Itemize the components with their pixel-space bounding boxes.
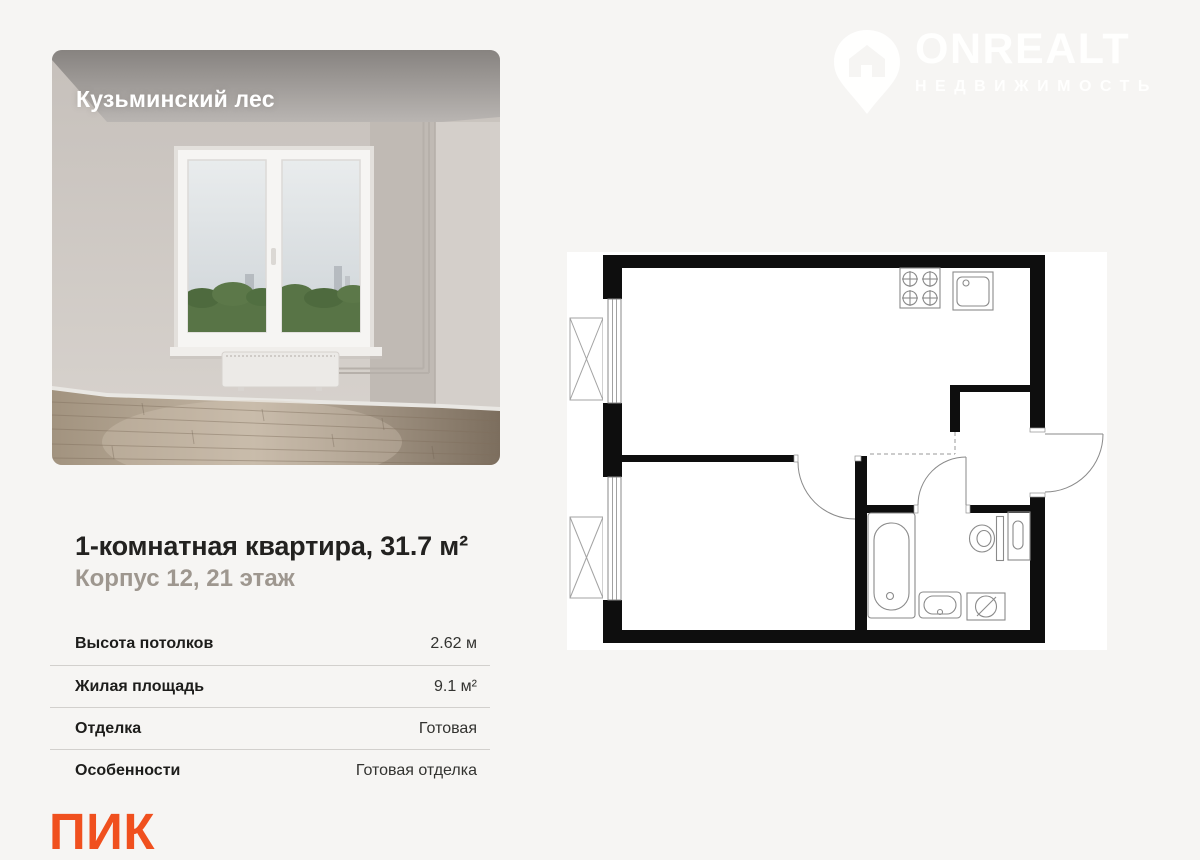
pik-developer-logo[interactable]: ПИК — [49, 806, 155, 857]
room-window — [170, 146, 382, 359]
spec-label: Особенности — [75, 762, 180, 780]
window — [603, 299, 622, 403]
page-subtitle: Корпус 12, 21 этаж — [75, 566, 295, 591]
table-row: Жилая площадь 9.1 м² — [50, 665, 490, 707]
stove — [900, 268, 940, 308]
spec-value: 2.62 м — [430, 635, 477, 653]
door-jambs — [794, 428, 1045, 513]
spec-value: 9.1 м² — [434, 678, 477, 696]
radiator — [222, 352, 339, 391]
spec-label: Жилая площадь — [75, 678, 204, 696]
table-row: Особенности Готовая отделка — [50, 749, 490, 791]
kitchen-sink — [953, 272, 993, 310]
entrance-door — [1045, 434, 1103, 492]
floorplan-drawing — [567, 252, 1107, 650]
opening-dashed-lines — [870, 432, 955, 454]
spec-table: Высота потолков 2.62 м Жилая площадь 9.1… — [50, 623, 490, 791]
page-title: 1-комнатная квартира, 31.7 м² — [75, 532, 468, 560]
toilet — [970, 517, 1004, 561]
window-handle — [271, 248, 276, 265]
spec-value: Готовая — [419, 720, 477, 738]
watermark-tagline: НЕДВИЖИМОСТЬ — [915, 78, 1158, 96]
walls — [603, 255, 1045, 643]
bathtub — [868, 513, 915, 618]
washing-machine — [967, 593, 1005, 620]
room-door — [798, 462, 855, 519]
table-row: Отделка Готовая — [50, 707, 490, 749]
room-wall-right-shade — [370, 122, 435, 414]
table-row: Высота потолков 2.62 м — [50, 623, 490, 665]
project-name-label: Кузьминский лес — [76, 86, 275, 113]
apartment-photo[interactable]: Кузьминский лес — [52, 50, 500, 465]
spec-label: Высота потолков — [75, 635, 213, 653]
washbasin — [919, 592, 961, 618]
room-wall-right-face — [435, 122, 500, 414]
balcony — [570, 318, 603, 400]
floorplan-image[interactable] — [567, 252, 1107, 650]
listing-page: { "page": { "background_color": "#f6f5f3… — [0, 0, 1200, 850]
balcony — [570, 517, 603, 598]
onrealt-watermark: ONREALT НЕДВИЖИМОСТЬ — [831, 28, 1158, 116]
house-location-pin-icon — [831, 28, 903, 116]
window — [603, 477, 622, 600]
bathroom-door — [918, 457, 966, 505]
watermark-brand: ONREALT — [915, 28, 1158, 71]
spec-value: Готовая отделка — [356, 762, 477, 780]
bathroom-shelf — [1008, 512, 1030, 560]
spec-label: Отделка — [75, 720, 141, 738]
